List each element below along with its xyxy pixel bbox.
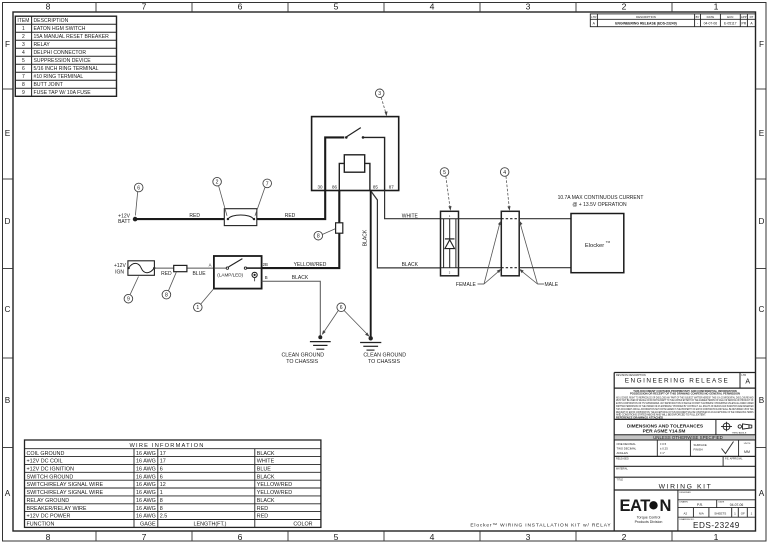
svg-text:3: 3 (526, 2, 531, 12)
svg-text:5: 5 (334, 2, 339, 12)
svg-text:TITLE: TITLE (617, 478, 624, 481)
svg-text:RED: RED (189, 213, 200, 219)
svg-text:+12V: +12V (114, 263, 126, 269)
svg-text:#10 RING TERMINAL: #10 RING TERMINAL (34, 74, 84, 80)
svg-text:A2: A2 (683, 512, 687, 516)
svg-text:9: 9 (22, 90, 25, 96)
svg-text:@ + 13.5V OPERATION: @ + 13.5V OPERATION (572, 202, 627, 208)
svg-text:Elocker™ WIRING INSTALLATION K: Elocker™ WIRING INSTALLATION KIT w/ RELA… (470, 522, 611, 528)
svg-text:E-05117: E-05117 (724, 22, 737, 26)
svg-text:2: 2 (216, 180, 219, 186)
svg-text:MM: MM (744, 450, 750, 454)
svg-text:THIRD ANGLE: THIRD ANGLE (732, 432, 747, 435)
svg-text:DRAWN: DRAWN (680, 500, 689, 503)
svg-text:YELLOW/RED: YELLOW/RED (257, 482, 292, 488)
svg-text:F: F (5, 40, 10, 49)
svg-text:16 AWG: 16 AWG (136, 482, 156, 488)
svg-text:YELLOW/RED: YELLOW/RED (257, 490, 292, 496)
svg-text:RED: RED (161, 271, 172, 277)
svg-text:P.E. APPROVAL: P.E. APPROVAL (725, 458, 743, 461)
svg-text:16 AWG: 16 AWG (136, 474, 156, 480)
svg-text:2: 2 (622, 2, 627, 12)
svg-text:6: 6 (238, 532, 243, 542)
svg-text:WIRING KIT: WIRING KIT (659, 483, 713, 490)
svg-text:RELAY: RELAY (34, 42, 51, 48)
svg-text:ENGINEERING RELEASE: ENGINEERING RELEASE (625, 378, 730, 385)
svg-text:WIRE INFORMATION: WIRE INFORMATION (129, 443, 204, 449)
svg-text:BUTT JOINT: BUTT JOINT (34, 82, 63, 88)
svg-text:BLACK: BLACK (292, 275, 309, 281)
svg-text:P.R.: P.R. (697, 503, 703, 507)
svg-text:04-07-06: 04-07-06 (704, 22, 718, 26)
svg-text:A: A (209, 262, 212, 267)
svg-text:4: 4 (22, 50, 25, 56)
svg-text:B: B (265, 275, 268, 280)
svg-text:1: 1 (714, 532, 719, 542)
svg-text:OF: OF (741, 512, 745, 516)
svg-text:Products Division: Products Division (635, 520, 663, 524)
svg-text:SHEETS: SHEETS (714, 512, 726, 516)
svg-text:04-07-06: 04-07-06 (730, 503, 744, 507)
svg-text:7: 7 (142, 532, 147, 542)
svg-text:3: 3 (22, 42, 25, 48)
svg-text:E: E (759, 129, 765, 138)
svg-text:2: 2 (22, 34, 25, 40)
svg-text:RED: RED (285, 213, 296, 219)
svg-text:RELAY GROUND: RELAY GROUND (27, 498, 70, 504)
svg-text:BLUE: BLUE (257, 467, 271, 473)
svg-text:WHITE: WHITE (257, 459, 275, 465)
svg-text:EDS-23249: EDS-23249 (693, 521, 740, 530)
svg-text:Torque Control: Torque Control (637, 515, 661, 519)
svg-text:16 AWG: 16 AWG (136, 506, 156, 512)
svg-text:6: 6 (238, 2, 243, 12)
svg-text:BLACK: BLACK (257, 498, 275, 504)
svg-text:DESCRIPTION: DESCRIPTION (636, 15, 656, 19)
svg-text:BY: BY (696, 15, 700, 19)
svg-text:8: 8 (22, 82, 25, 88)
svg-text:CLEAN GROUND: CLEAN GROUND (281, 353, 324, 359)
svg-text:BLACK: BLACK (363, 229, 369, 246)
svg-text:16 AWG: 16 AWG (136, 498, 156, 504)
svg-text:7: 7 (266, 181, 269, 187)
svg-text:TO CHASSIS: TO CHASSIS (368, 359, 400, 365)
svg-text:5: 5 (22, 58, 25, 64)
svg-text:Elocker: Elocker (585, 243, 604, 249)
svg-text:6: 6 (137, 185, 140, 191)
svg-text:FUNCTION: FUNCTION (27, 522, 55, 528)
svg-text:5: 5 (334, 532, 339, 542)
svg-text:WHITE: WHITE (402, 213, 419, 219)
svg-text:N/A: N/A (699, 512, 704, 516)
svg-text:MATERIAL: MATERIAL (616, 468, 628, 471)
svg-text:(LAMP/LED): (LAMP/LED) (217, 273, 243, 278)
svg-text:COIL GROUND: COIL GROUND (27, 451, 65, 457)
svg-text:B: B (5, 396, 11, 405)
svg-text:CLEAN GROUND: CLEAN GROUND (363, 353, 406, 359)
svg-text:8: 8 (165, 293, 168, 299)
svg-text:TM: TM (606, 240, 611, 244)
svg-text:10.7A MAX CONTINUOUS CURRENT: 10.7A MAX CONTINUOUS CURRENT (558, 195, 644, 201)
svg-text:B: B (759, 396, 765, 405)
svg-text:1: 1 (196, 305, 199, 311)
svg-text:12: 12 (160, 482, 166, 488)
svg-text:6: 6 (160, 467, 163, 473)
svg-text:ITEM: ITEM (17, 18, 29, 24)
svg-text:5/16 INCH RING TERMINAL: 5/16 INCH RING TERMINAL (34, 66, 99, 72)
svg-text:ANGLES: ANGLES (617, 451, 628, 455)
svg-text:+12V DC COIL: +12V DC COIL (27, 459, 63, 465)
svg-text:17: 17 (160, 459, 166, 465)
svg-text:PR: PR (741, 22, 746, 26)
svg-text:1: 1 (714, 2, 719, 12)
svg-text:REFERENCE DRAWINGS ATTACHED: REFERENCE DRAWINGS ATTACHED (616, 416, 663, 420)
svg-text:C: C (5, 305, 11, 314)
svg-text:FEMALE: FEMALE (456, 282, 477, 288)
svg-text:86: 86 (332, 185, 338, 190)
svg-text:COLOR: COLOR (293, 522, 312, 528)
svg-text:REVISION DESCRIPTION: REVISION DESCRIPTION (616, 374, 646, 377)
svg-text:5: 5 (443, 170, 446, 176)
svg-text:16 AWG: 16 AWG (136, 490, 156, 496)
svg-text:2: 2 (622, 532, 627, 542)
svg-text:1: 1 (160, 490, 163, 496)
svg-text:DESCRIPTION: DESCRIPTION (34, 18, 69, 24)
svg-text:TO CHASSIS: TO CHASSIS (286, 359, 318, 365)
svg-text:A: A (745, 379, 750, 386)
svg-text:3: 3 (526, 532, 531, 542)
svg-text:17: 17 (160, 451, 166, 457)
svg-text:16 AWG: 16 AWG (136, 459, 156, 465)
svg-text:6: 6 (340, 305, 343, 311)
svg-text:ECN: ECN (727, 15, 733, 19)
svg-text:GAGE: GAGE (140, 522, 156, 528)
svg-text:ONE DECIMAL: ONE DECIMAL (617, 442, 637, 446)
svg-text:9: 9 (127, 297, 130, 303)
svg-text:POSSESSION OR RECEIPT OF THIS: POSSESSION OR RECEIPT OF THIS DRAWING CO… (630, 392, 740, 396)
svg-text:± 0.5: ± 0.5 (660, 442, 667, 446)
svg-text:BREAKER/RELAY WIRE: BREAKER/RELAY WIRE (27, 506, 87, 512)
svg-text:4: 4 (430, 2, 435, 12)
svg-text:+12V DC IGNITION: +12V DC IGNITION (27, 467, 75, 473)
svg-text:YELLOW/RED: YELLOW/RED (294, 262, 327, 268)
svg-text:RELEASED: RELEASED (616, 458, 629, 461)
svg-text:N: N (660, 497, 672, 515)
svg-text:7: 7 (142, 2, 147, 12)
svg-text:1: 1 (22, 26, 25, 32)
svg-text:16 AWG: 16 AWG (136, 467, 156, 473)
svg-text:IGN: IGN (115, 269, 124, 275)
svg-text:SWITCH/RELAY SIGNAL WIRE: SWITCH/RELAY SIGNAL WIRE (27, 482, 104, 488)
svg-text:APP: APP (741, 15, 747, 19)
svg-text:FUSE TAP W/ 10A FUSE: FUSE TAP W/ 10A FUSE (34, 90, 92, 96)
svg-text:BLACK: BLACK (257, 451, 275, 457)
svg-text:EAT: EAT (620, 497, 651, 515)
svg-text:TWO DECIMAL: TWO DECIMAL (617, 447, 637, 451)
svg-text:3: 3 (378, 91, 381, 97)
svg-text:LTR: LTR (742, 374, 747, 377)
svg-text:8: 8 (160, 506, 163, 512)
svg-text:4: 4 (503, 170, 506, 176)
svg-text:30: 30 (317, 185, 323, 190)
svg-text:RED: RED (257, 506, 268, 512)
svg-text:8: 8 (46, 2, 51, 12)
svg-text:DATE: DATE (719, 500, 725, 503)
svg-text:MALE: MALE (545, 282, 559, 288)
svg-text:-: - (697, 22, 698, 26)
svg-text:E: E (5, 129, 11, 138)
svg-text:8: 8 (160, 498, 163, 504)
svg-text:BATT: BATT (118, 219, 130, 225)
svg-text:EATON HGM SWITCH: EATON HGM SWITCH (34, 26, 86, 32)
svg-text:7: 7 (22, 74, 25, 80)
svg-text:SUPPRESSION DEVICE: SUPPRESSION DEVICE (34, 58, 92, 64)
svg-text:DELPHI CONNECTOR: DELPHI CONNECTOR (34, 50, 87, 56)
svg-text:LENGTH(FT.): LENGTH(FT.) (194, 522, 227, 528)
svg-text:BLUE: BLUE (192, 271, 206, 277)
svg-text:2.5: 2.5 (160, 514, 168, 520)
svg-text:RED: RED (257, 514, 268, 520)
svg-text:± 1°: ± 1° (660, 451, 665, 455)
svg-text:A: A (759, 489, 765, 498)
svg-text:FINISH: FINISH (694, 447, 703, 451)
svg-text:6: 6 (160, 474, 163, 480)
svg-text:DATE: DATE (707, 15, 715, 19)
svg-text:8: 8 (46, 532, 51, 542)
svg-text:PER ASME Y14.5M: PER ASME Y14.5M (643, 428, 686, 434)
svg-text:BLACK: BLACK (402, 262, 419, 268)
svg-text:LTR: LTR (591, 15, 596, 19)
svg-text:DT: DT (750, 15, 754, 19)
svg-text:16 AWG: 16 AWG (136, 451, 156, 457)
svg-text:UNITS: UNITS (744, 443, 751, 445)
svg-text:+12V DC POWER: +12V DC POWER (27, 514, 71, 520)
svg-text:SWITCH/RELAY SIGNAL WIRE: SWITCH/RELAY SIGNAL WIRE (27, 490, 104, 496)
svg-text:BLACK: BLACK (257, 474, 275, 480)
svg-text:F: F (759, 40, 764, 49)
svg-text:± 0.25: ± 0.25 (660, 447, 668, 451)
svg-text:D: D (759, 217, 765, 226)
svg-text:DESIGNED: DESIGNED (680, 492, 692, 494)
svg-text:SWITCH GROUND: SWITCH GROUND (27, 474, 74, 480)
svg-text:87: 87 (389, 185, 395, 190)
svg-text:ENGINEERING RELEASE (EDS-23249: ENGINEERING RELEASE (EDS-23249) (615, 22, 676, 26)
svg-text:C: C (759, 305, 765, 314)
svg-text:SURFACE: SURFACE (694, 443, 707, 447)
svg-text:16 AWG: 16 AWG (136, 514, 156, 520)
svg-text:15A MANUAL RESET BREAKER: 15A MANUAL RESET BREAKER (34, 34, 110, 40)
svg-text:UNLESS OTHERWISE SPECIFIED: UNLESS OTHERWISE SPECIFIED (653, 435, 723, 440)
svg-text:8: 8 (317, 234, 320, 240)
svg-text:A: A (5, 489, 11, 498)
svg-text:6: 6 (22, 66, 25, 72)
svg-text:85: 85 (373, 185, 379, 190)
svg-text:4: 4 (430, 532, 435, 542)
svg-text:2B: 2B (263, 262, 268, 267)
svg-text:D: D (5, 217, 11, 226)
